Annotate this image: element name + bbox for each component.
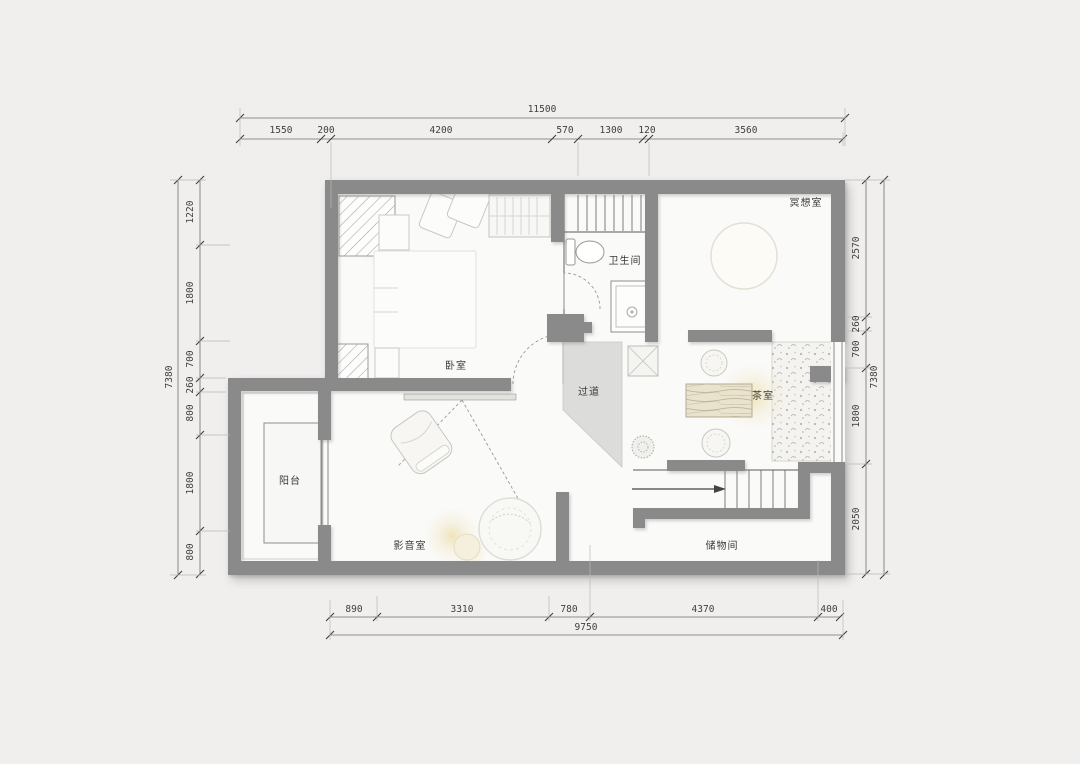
- dim-label: 2570: [851, 236, 862, 259]
- window-tea-room: [831, 342, 845, 462]
- dim-label: 3310: [451, 604, 474, 615]
- dim-label: 3560: [735, 125, 758, 136]
- nightstand-bottom: [375, 348, 399, 378]
- dim-label: 1550: [270, 125, 293, 136]
- tea-stool-1: [701, 350, 727, 376]
- round-rug-meditation: [711, 223, 777, 289]
- dim-label: 120: [638, 125, 655, 136]
- dim-label: 260: [185, 376, 196, 393]
- dim-label: 800: [185, 404, 196, 421]
- room-label-meditation: 冥想室: [790, 196, 823, 209]
- dim-label: 1800: [851, 404, 862, 427]
- room-label-balcony: 阳台: [279, 474, 301, 487]
- bean-bag: [454, 534, 480, 560]
- wardrobe: [489, 195, 550, 237]
- room-label-bedroom: 卧室: [445, 359, 467, 372]
- room-label-bathroom: 卫生间: [609, 254, 642, 267]
- plant: [632, 436, 654, 458]
- floor-plan-page: 卧室 卫生间 冥想室 过道 茶室 阳台 影音室 储物间 11500 1550 2…: [0, 0, 1080, 764]
- dim-label: 4370: [692, 604, 715, 615]
- dim-label: 200: [317, 125, 334, 136]
- projection-screen: [404, 394, 516, 400]
- dim-total-right: 7380: [869, 365, 880, 388]
- bed: [374, 251, 476, 348]
- room-label-hallway: 过道: [578, 385, 600, 398]
- room-label-tea-room: 茶室: [752, 389, 774, 402]
- dim-label: 1800: [185, 471, 196, 494]
- room-label-media-room: 影音室: [394, 539, 427, 552]
- dim-label: 890: [345, 604, 362, 615]
- nightstand-top: [379, 215, 409, 250]
- dim-label: 780: [560, 604, 577, 615]
- round-rug-media: [479, 498, 541, 560]
- dim-label: 1800: [185, 281, 196, 304]
- dim-label: 570: [556, 125, 573, 136]
- tea-stool-2: [702, 429, 730, 457]
- dim-label: 800: [185, 543, 196, 560]
- dim-label: 400: [820, 604, 837, 615]
- toilet: [566, 239, 604, 265]
- dim-total-left: 7380: [164, 365, 175, 388]
- dim-label: 260: [851, 315, 862, 332]
- floor-plan-svg: 卧室 卫生间 冥想室 过道 茶室 阳台 影音室 储物间 11500 1550 2…: [0, 0, 1080, 764]
- dimension-chain-right: 2570 260 700 1800 2050 7380: [845, 176, 890, 579]
- tea-table: [686, 384, 752, 417]
- dim-label: 4200: [430, 125, 453, 136]
- dim-label: 700: [185, 350, 196, 367]
- dim-total-top: 11500: [528, 104, 557, 115]
- dim-total-bottom: 9750: [575, 622, 598, 633]
- dimension-chain-left: 7380 1220 1800 700 260 800 1800 800: [164, 176, 230, 579]
- dim-label: 1220: [185, 200, 196, 223]
- dim-label: 2050: [851, 507, 862, 530]
- room-label-storage: 储物间: [706, 539, 739, 552]
- dim-label: 1300: [600, 125, 623, 136]
- shaft-x-box: [628, 346, 658, 376]
- dim-label: 700: [851, 340, 862, 357]
